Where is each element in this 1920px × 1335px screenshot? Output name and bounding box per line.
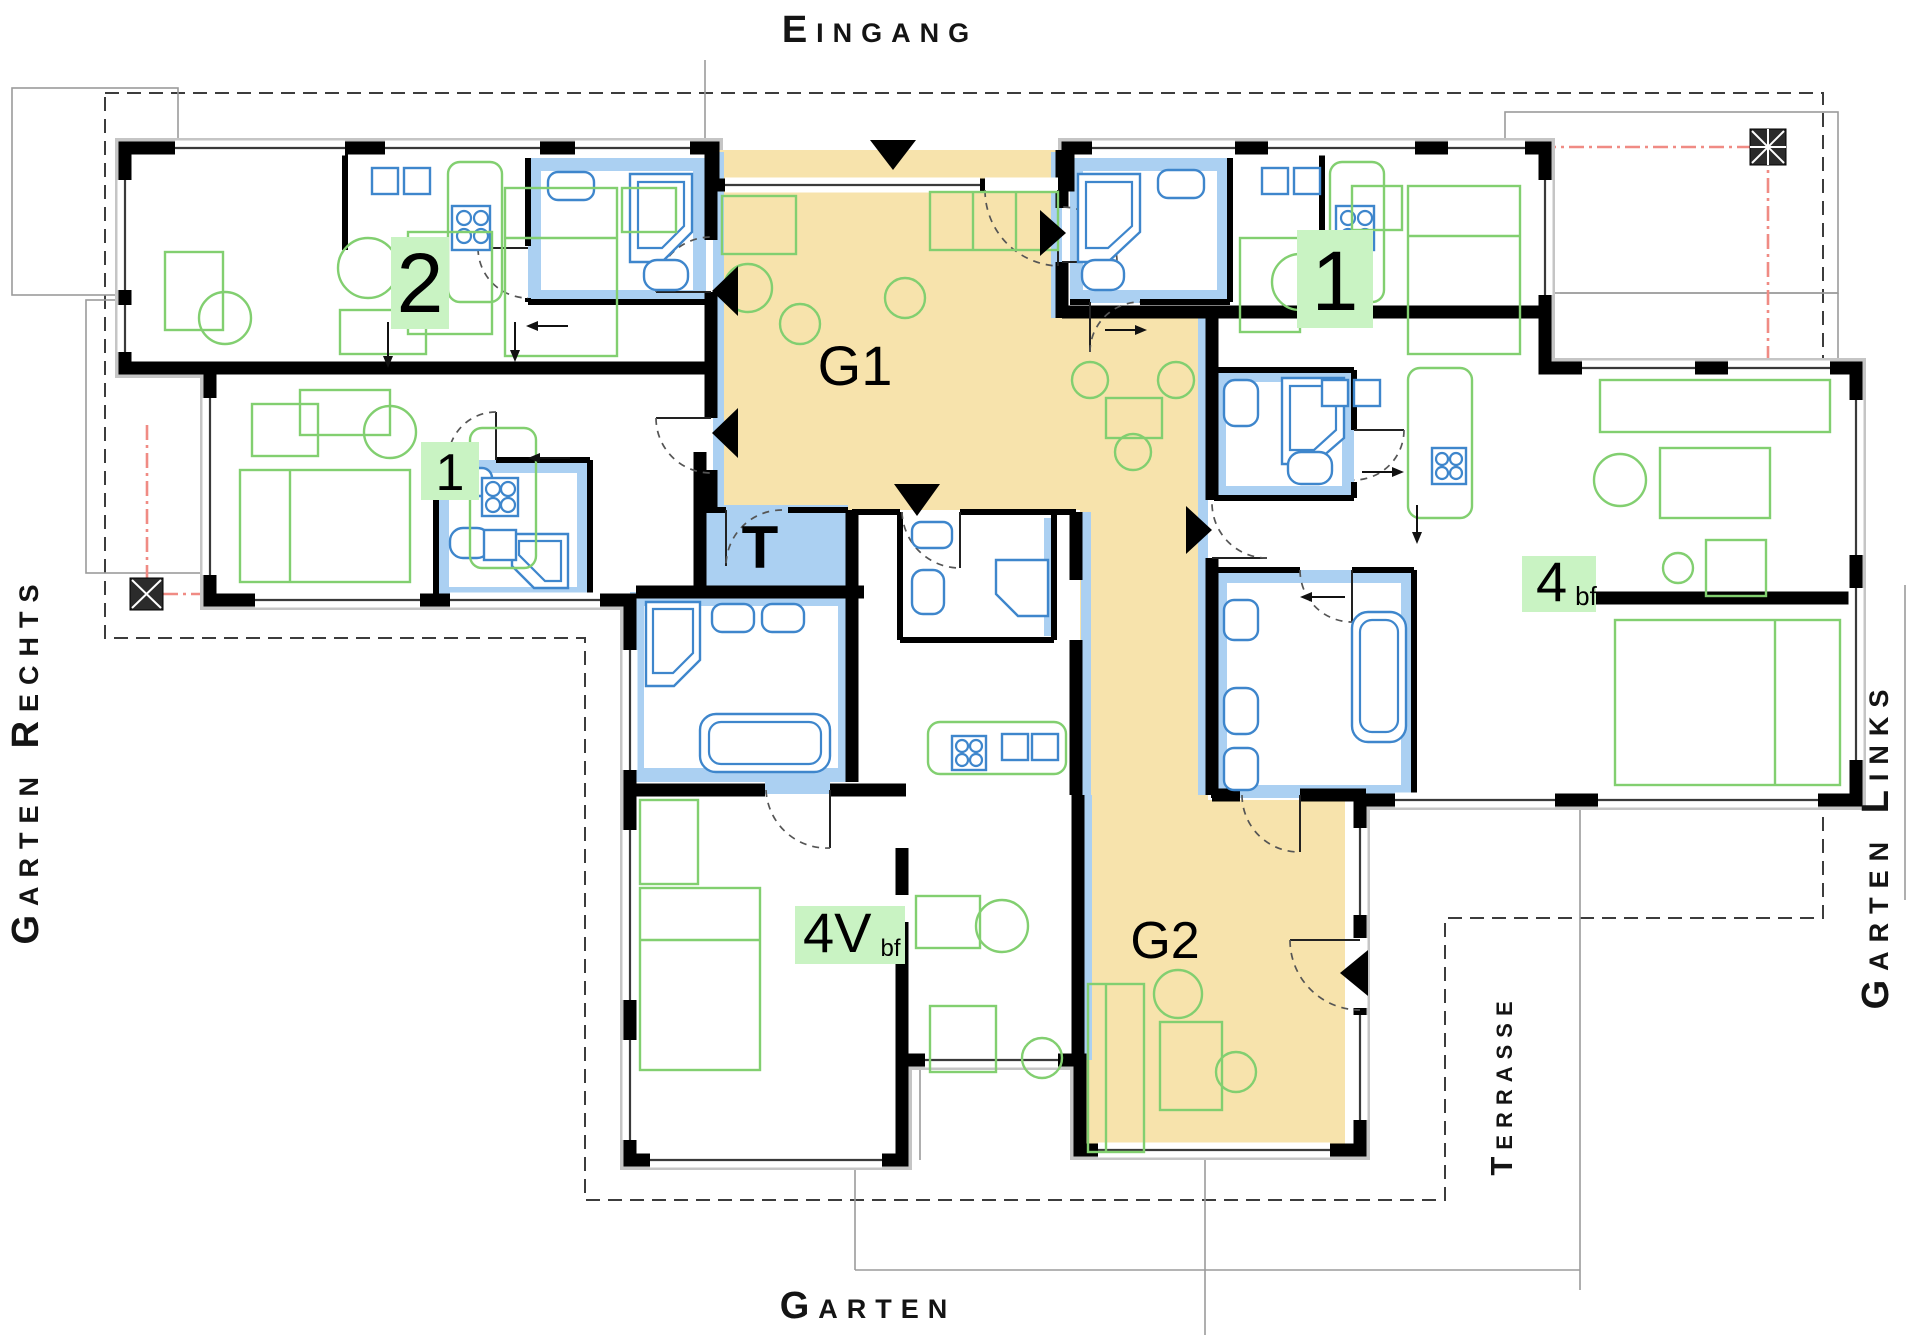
- room-g1-label: G1: [818, 334, 893, 397]
- unit-1-right-label: 1: [1312, 234, 1359, 328]
- unit-1-left-label: 1: [436, 444, 465, 502]
- label-garten-rechts: Garten Rechts: [5, 575, 47, 944]
- unit-2-label: 2: [397, 236, 444, 330]
- floor-plan-canvas: 2 1 1 4bf 4Vbf G1 G2 T Eingang Garten Re…: [0, 0, 1920, 1335]
- room-t-label: T: [742, 514, 779, 581]
- label-terrasse: Terrasse: [1484, 994, 1519, 1175]
- label-garten-links: Garten Links: [1855, 681, 1897, 1010]
- label-eingang: Eingang: [782, 9, 978, 51]
- room-g2-label: G2: [1130, 912, 1199, 970]
- label-garten: Garten: [780, 1285, 957, 1327]
